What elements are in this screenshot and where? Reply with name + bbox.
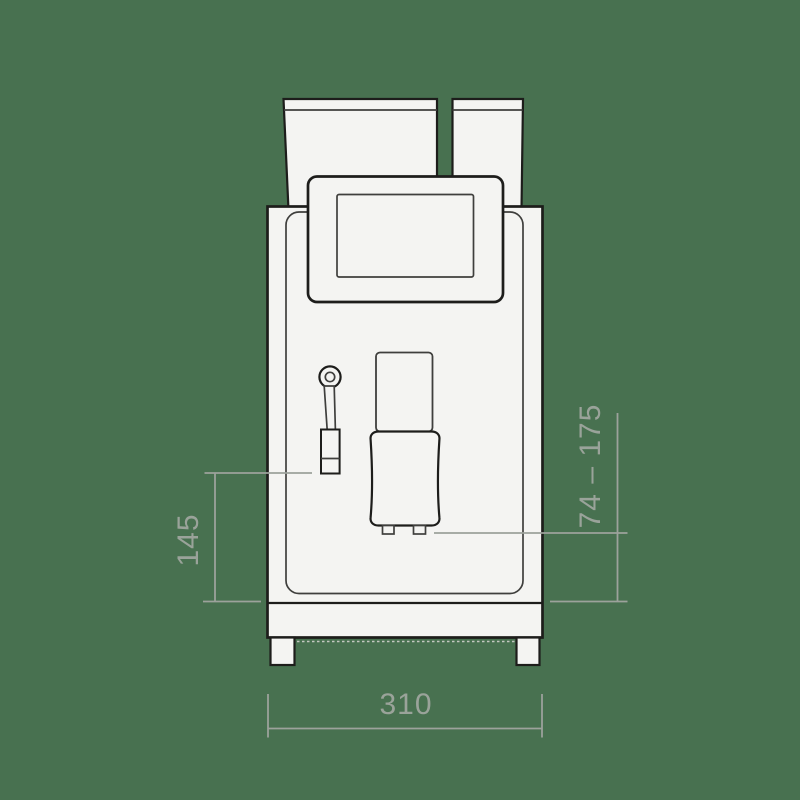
right-foot bbox=[517, 638, 540, 666]
display-screen bbox=[337, 195, 474, 278]
steam-wand-knob bbox=[319, 366, 340, 387]
spout-slider bbox=[376, 353, 433, 432]
spout-outlet-right bbox=[414, 526, 426, 535]
left-dimension-label: 145 bbox=[174, 513, 204, 566]
machine-drawing bbox=[0, 0, 800, 800]
coffee-spout bbox=[371, 353, 440, 535]
dimension-diagram: 145 74 – 175 310 bbox=[0, 0, 800, 800]
bottom-dimension-label: 310 bbox=[379, 690, 432, 720]
right-dimension-label: 74 – 175 bbox=[576, 404, 606, 529]
spout-outlet-left bbox=[383, 526, 395, 535]
spout-body bbox=[371, 432, 440, 526]
left-foot bbox=[271, 638, 295, 666]
steam-wand-nozzle bbox=[321, 430, 340, 474]
